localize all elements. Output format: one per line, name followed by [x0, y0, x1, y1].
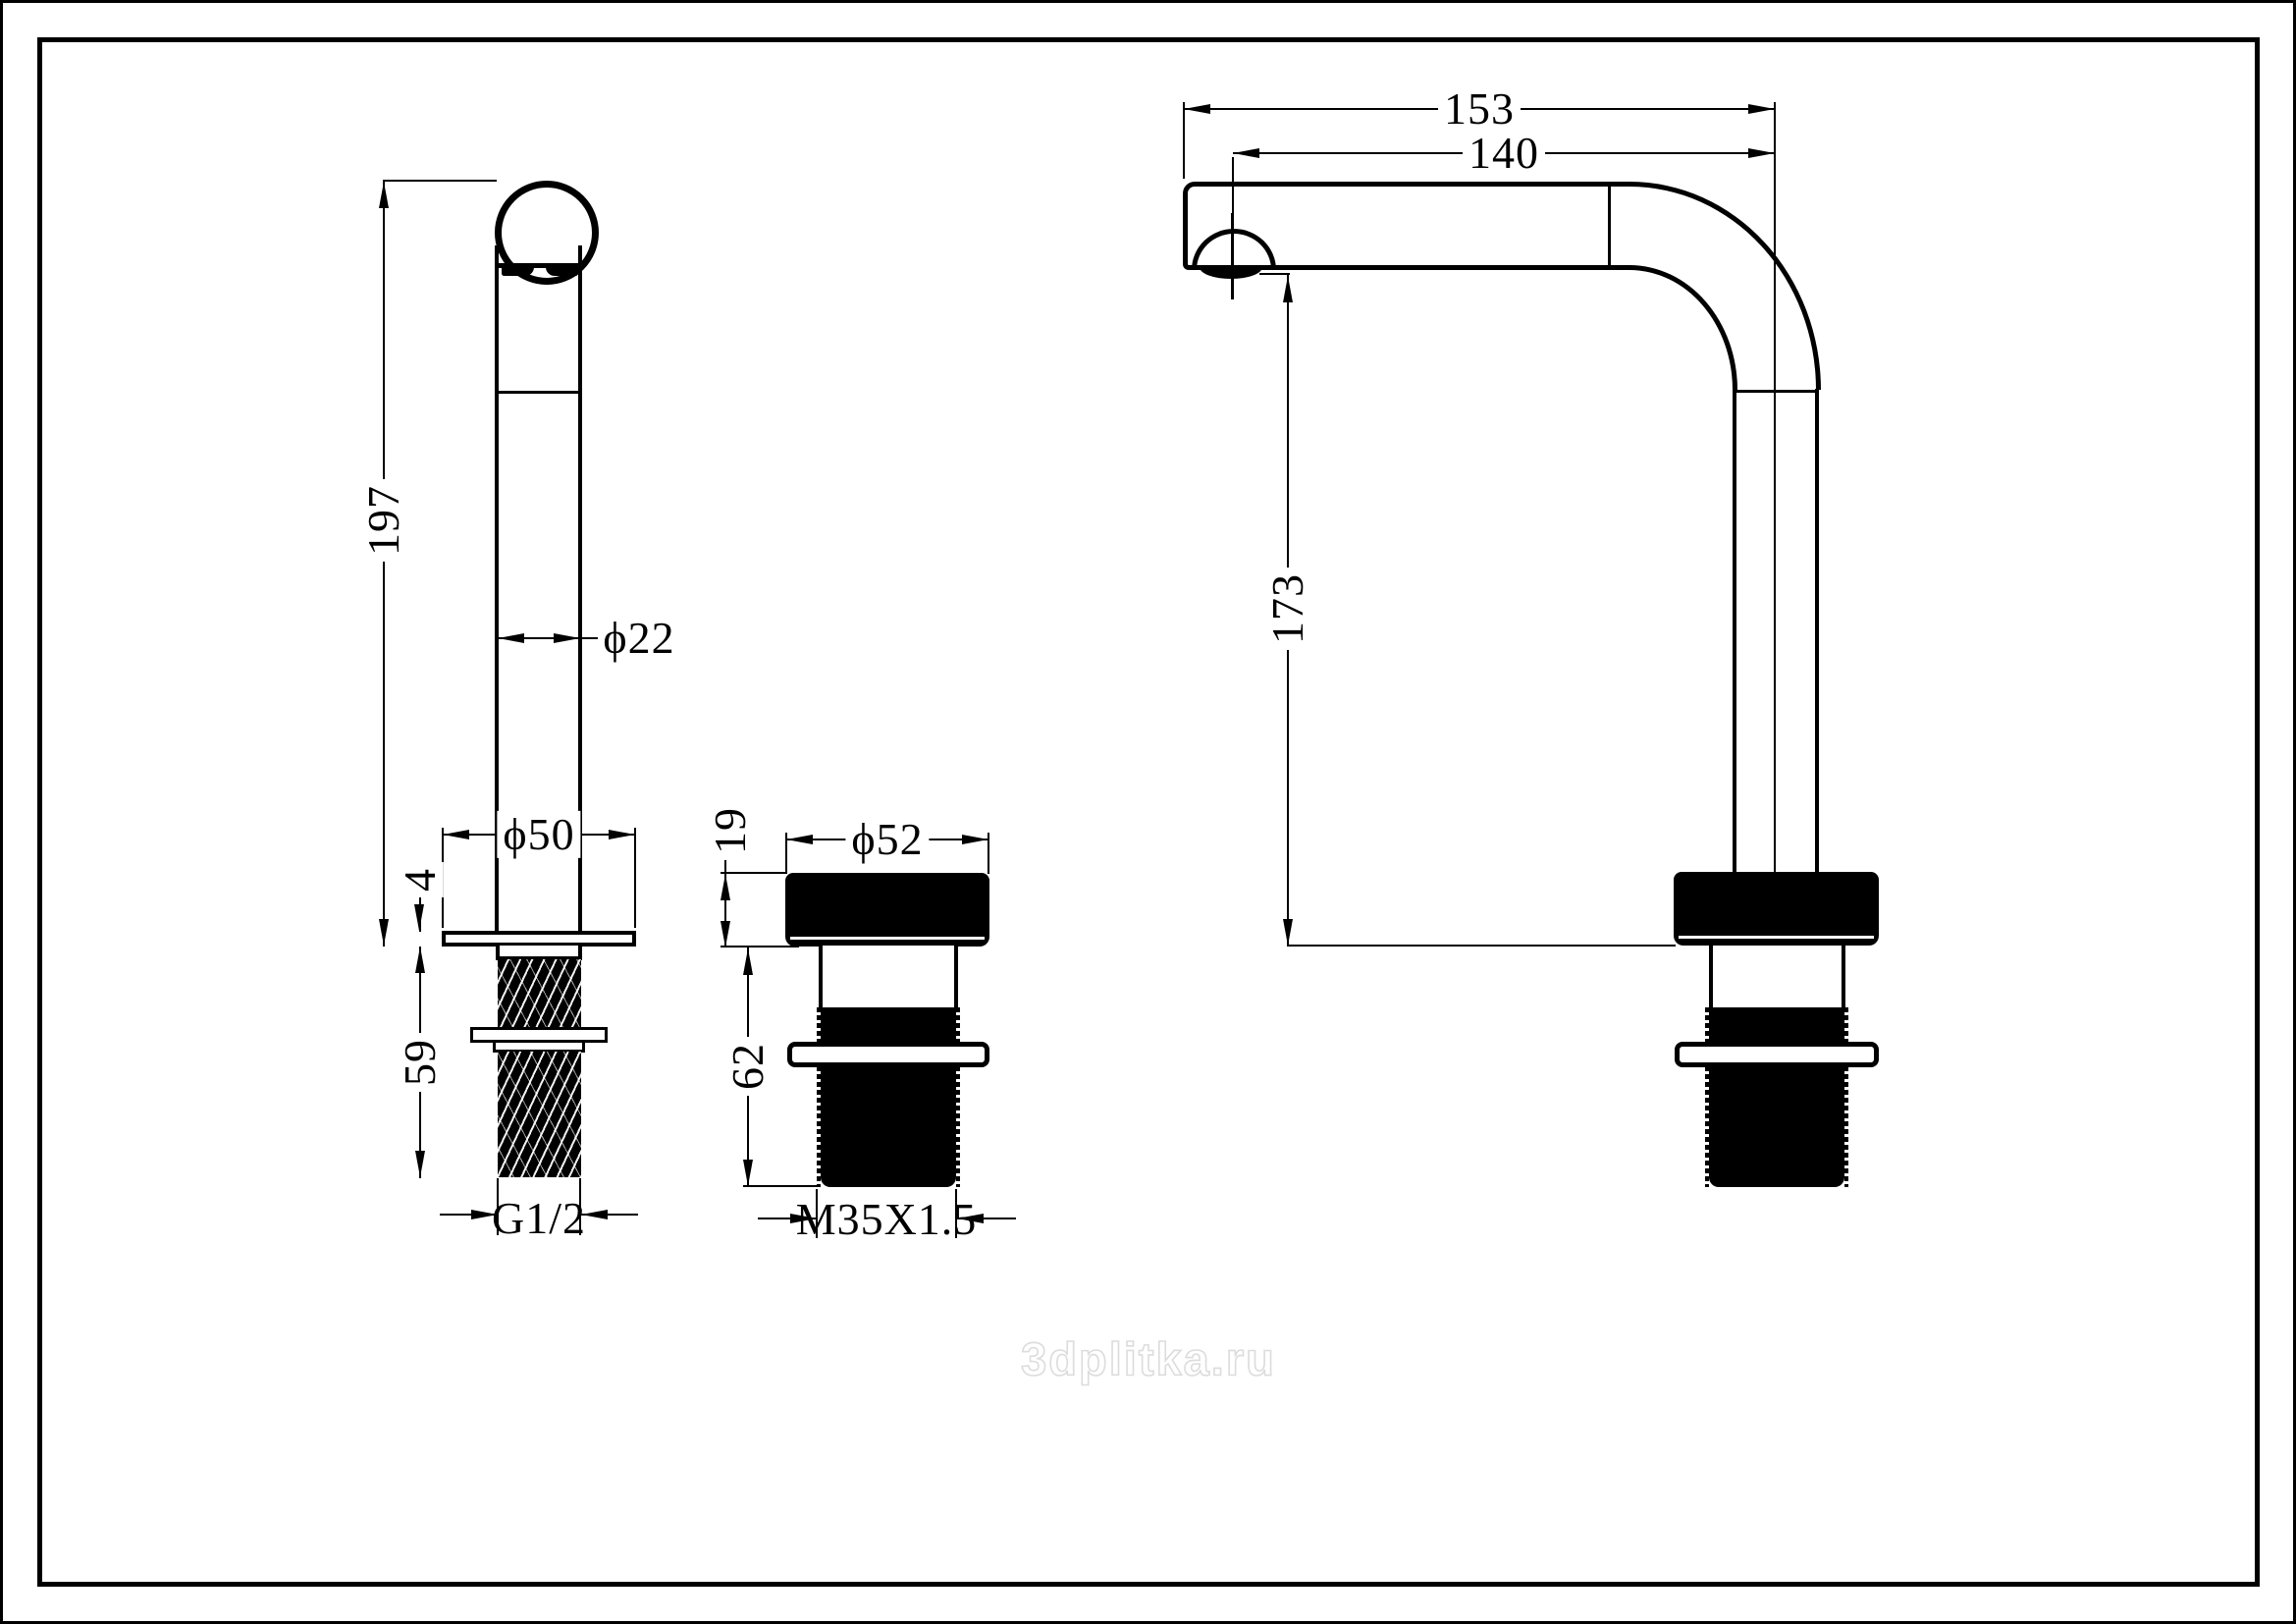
- arrow-62-top: [743, 948, 753, 975]
- spout-bend-inner-arc: [1629, 265, 1737, 390]
- base-flange: [442, 931, 636, 947]
- dim-handle-height: 197: [360, 479, 407, 562]
- spout-base-cap-groove: [1679, 936, 1874, 939]
- leader-line-173-top: [1259, 273, 1290, 275]
- shank-cylinder: [819, 946, 958, 1009]
- spout-base-cap: [1674, 872, 1879, 946]
- ext-line-62-bottom: [743, 1185, 820, 1187]
- arrow-140-right: [1748, 148, 1775, 158]
- arrow-4-top: [414, 904, 424, 931]
- shank-flange-nut: [787, 1042, 989, 1067]
- dim-outlet-reach: 140: [1463, 130, 1545, 177]
- arrow-d52-right: [962, 835, 988, 844]
- stem-joint-line: [495, 391, 582, 394]
- watermark-text: 3dplitka.ru: [1021, 1336, 1276, 1382]
- arrow-d22-right: [554, 633, 580, 643]
- shank-cap: [785, 873, 989, 947]
- arrow-173-bottom: [1283, 919, 1293, 946]
- spout-base-flange-nut: [1675, 1042, 1879, 1067]
- dim-thread-length: 59: [397, 1033, 444, 1092]
- arrow-d22-left: [498, 633, 524, 643]
- arrow-153-right: [1748, 104, 1775, 114]
- shank-cap-groove: [790, 937, 985, 940]
- ext-line-19-bottom: [721, 946, 799, 947]
- dim-line-197: [383, 181, 385, 947]
- dim-flange-diameter: ϕ50: [497, 811, 580, 858]
- dim-shank-thread-spec: M35X1.5: [790, 1196, 984, 1243]
- arrow-d50-left: [443, 830, 469, 839]
- spout-seam-vertical: [1608, 187, 1611, 265]
- arrow-153-left: [1184, 104, 1210, 114]
- aerator-centerline: [1231, 213, 1234, 299]
- dim-outlet-height: 173: [1264, 568, 1311, 650]
- arrow-d50-right: [609, 830, 635, 839]
- dim-cap-diameter: ϕ52: [845, 816, 929, 863]
- ext-line-d50-right: [634, 828, 636, 928]
- pipe-left-edge: [1733, 389, 1736, 874]
- pipe-right-edge: [1815, 389, 1819, 874]
- threaded-rod-upper: [498, 959, 581, 1029]
- pipe-seam-line: [1735, 390, 1817, 393]
- threaded-rod-lower: [498, 1052, 581, 1177]
- arrow-62-bottom: [743, 1160, 753, 1186]
- arrow-19-top: [721, 874, 730, 900]
- ext-line-173-bottom: [1287, 945, 1676, 947]
- shank-thread-lower: [821, 1066, 956, 1187]
- arrow-197-top: [379, 182, 389, 208]
- arrow-197-bottom: [379, 919, 389, 946]
- spout-base-thread-lower: [1709, 1066, 1844, 1187]
- spout-base-thread-upper: [1709, 1007, 1844, 1044]
- ext-line-153-right: [1774, 102, 1776, 872]
- dim-handle-thread-spec: G1/2: [486, 1195, 592, 1242]
- arrow-59-bottom: [415, 1151, 425, 1177]
- arrow-d52-left: [786, 835, 813, 844]
- shank-thread-upper: [821, 1007, 956, 1044]
- dim-flange-thickness: 4: [397, 862, 444, 897]
- dim-body-length: 62: [724, 1037, 772, 1096]
- dim-cap-thickness: 19: [707, 801, 754, 860]
- technical-drawing-canvas: 197 ϕ22 ϕ50 4 59 G1/2 ϕ52 19 62: [0, 0, 2296, 1624]
- knob-wedge-right: [546, 267, 578, 276]
- arrow-173-top: [1283, 276, 1293, 302]
- arrow-140-left: [1233, 148, 1259, 158]
- thread-neck: [496, 946, 582, 960]
- ext-line-19-top: [721, 872, 787, 874]
- arrow-19-bottom: [721, 921, 730, 947]
- knob-wedge-left: [502, 267, 534, 276]
- ext-line-140-left: [1232, 157, 1234, 216]
- dim-total-reach: 153: [1438, 85, 1521, 133]
- ext-line-197-top: [383, 180, 497, 182]
- spout-base-cylinder: [1709, 946, 1845, 1009]
- dim-stem-diameter: ϕ22: [597, 615, 680, 662]
